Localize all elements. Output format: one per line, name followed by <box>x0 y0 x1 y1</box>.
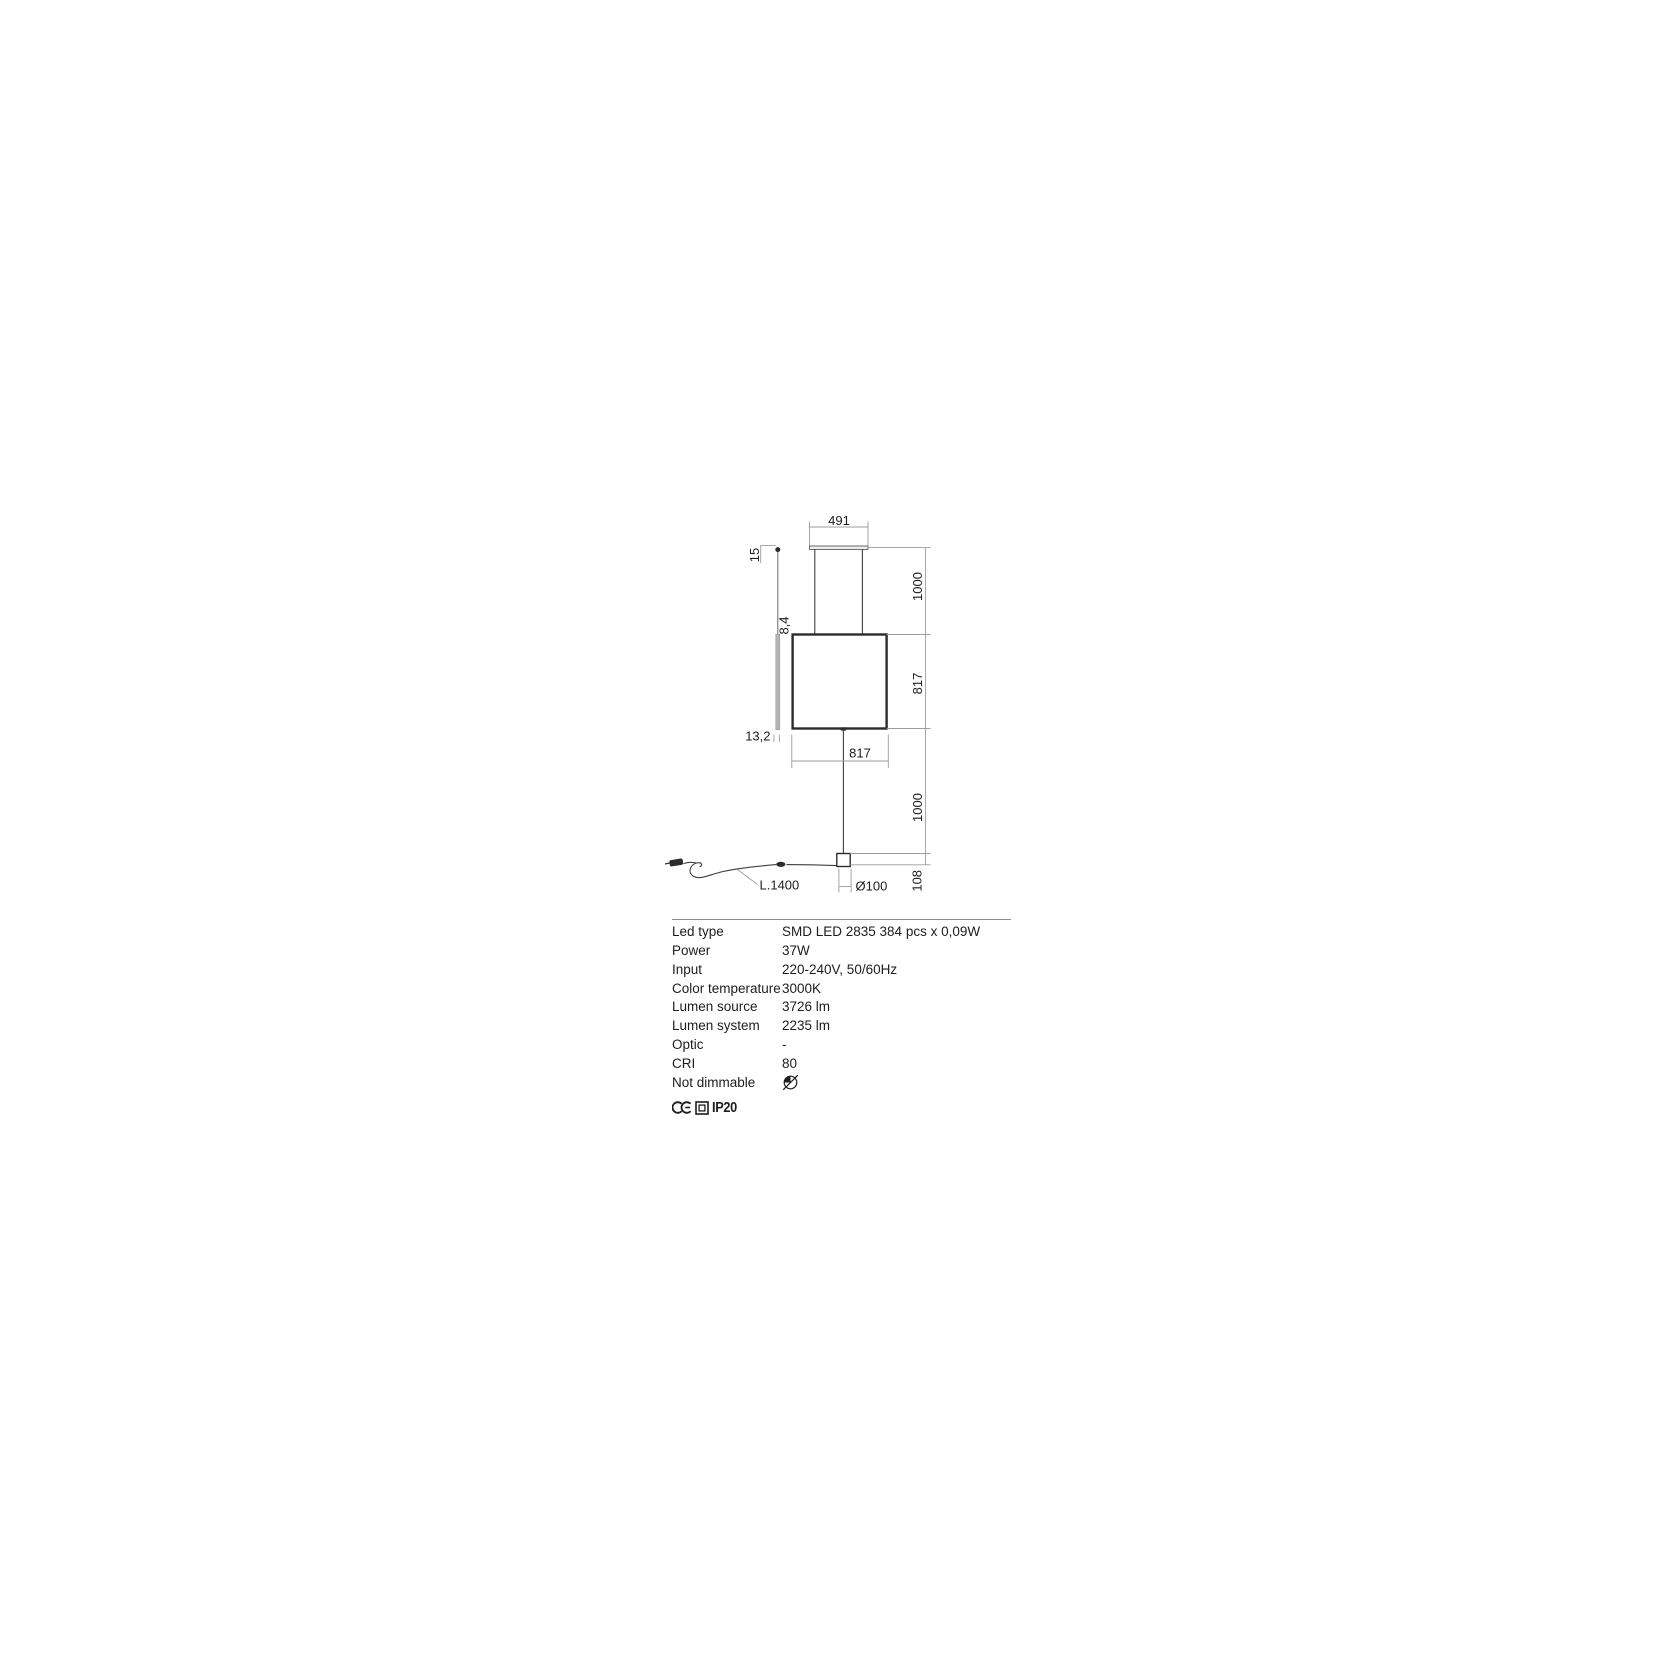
spec-value: 37W <box>782 942 1011 961</box>
base-box <box>837 854 850 867</box>
dim-label-base-diameter: Ø100 <box>856 879 888 894</box>
spec-row-color-temperature: Color temperature 3000K <box>672 980 1011 999</box>
spec-value: SMD LED 2835 384 pcs x 0,09W <box>782 923 1011 942</box>
dimension-base-diameter: Ø100 <box>839 869 887 894</box>
suspension-shaft <box>815 549 863 634</box>
spec-value: 3000K <box>782 980 1011 999</box>
dimension-profile-bottom: 13,2 <box>745 729 779 744</box>
side-profile <box>775 547 780 730</box>
dim-label-base-height: 108 <box>909 870 924 892</box>
spec-value: 80 <box>782 1055 1011 1074</box>
spec-table: Led type SMD LED 2835 384 pcs x 0,09W Po… <box>672 919 1011 1092</box>
spec-row-led-type: Led type SMD LED 2835 384 pcs x 0,09W <box>672 923 1011 942</box>
spec-row-lumen-source: Lumen source 3726 lm <box>672 998 1011 1017</box>
spec-row-not-dimmable: Not dimmable <box>672 1074 1011 1093</box>
spec-row-optic: Optic - <box>672 1036 1011 1055</box>
spec-value: 3726 lm <box>782 998 1011 1017</box>
spec-label: Power <box>672 942 782 961</box>
spec-label: CRI <box>672 1055 782 1074</box>
dim-label-suspension-bottom: 1000 <box>910 793 925 822</box>
dim-label-body-height: 817 <box>910 673 925 695</box>
spec-label: Lumen system <box>672 1017 782 1036</box>
profile-body-bar <box>776 634 780 730</box>
dim-label-profile-bottom: 13,2 <box>745 729 770 744</box>
cable-connector <box>776 862 785 867</box>
dimension-profile-top: 8,4 <box>776 616 791 634</box>
certification-marks: IP20 <box>672 1100 740 1116</box>
dim-label-profile-top: 8,4 <box>776 616 791 634</box>
profile-ceiling-point <box>775 547 780 552</box>
supply-cable <box>665 858 837 877</box>
spec-row-power: Power 37W <box>672 942 1011 961</box>
plug-icon <box>669 858 683 866</box>
spec-label: Led type <box>672 923 782 942</box>
spec-value: 220-240V, 50/60Hz <box>782 961 1011 980</box>
dimension-body-width: 817 <box>792 735 889 769</box>
spec-label: Not dimmable <box>672 1074 782 1093</box>
dimension-top-width: 491 <box>810 513 869 546</box>
lamp-body <box>793 635 887 729</box>
dim-label-suspension-top: 1000 <box>910 572 925 601</box>
spec-label: Optic <box>672 1036 782 1055</box>
spec-value: 2235 lm <box>782 1017 1011 1036</box>
spec-value: - <box>782 1036 1011 1055</box>
dim-label-canopy-height: 15 <box>747 548 762 562</box>
technical-drawing: 491 L.1400 <box>620 465 1050 915</box>
double-insulation-icon <box>695 1101 709 1115</box>
ce-mark-icon <box>672 1101 692 1115</box>
not-dimmable-icon <box>782 1074 799 1091</box>
dim-label-cable-length: L.1400 <box>760 878 800 893</box>
datasheet-page: 491 L.1400 <box>0 0 1660 1660</box>
spec-row-cri: CRI 80 <box>672 1055 1011 1074</box>
cable-leader-line <box>738 870 758 885</box>
spec-row-lumen-system: Lumen system 2235 lm <box>672 1017 1011 1036</box>
dim-label-top-width: 491 <box>828 513 850 528</box>
ip-rating: IP20 <box>712 1100 737 1116</box>
spec-label: Color temperature <box>672 980 782 999</box>
table-top-rule <box>672 919 1011 920</box>
dim-label-body-width: 817 <box>849 746 871 761</box>
ceiling-canopy <box>810 546 869 549</box>
dimension-canopy-height: 15 <box>747 546 776 563</box>
spec-value <box>782 1074 1011 1093</box>
spec-label: Lumen source <box>672 998 782 1017</box>
spec-label: Input <box>672 961 782 980</box>
spec-row-input: Input 220-240V, 50/60Hz <box>672 961 1011 980</box>
